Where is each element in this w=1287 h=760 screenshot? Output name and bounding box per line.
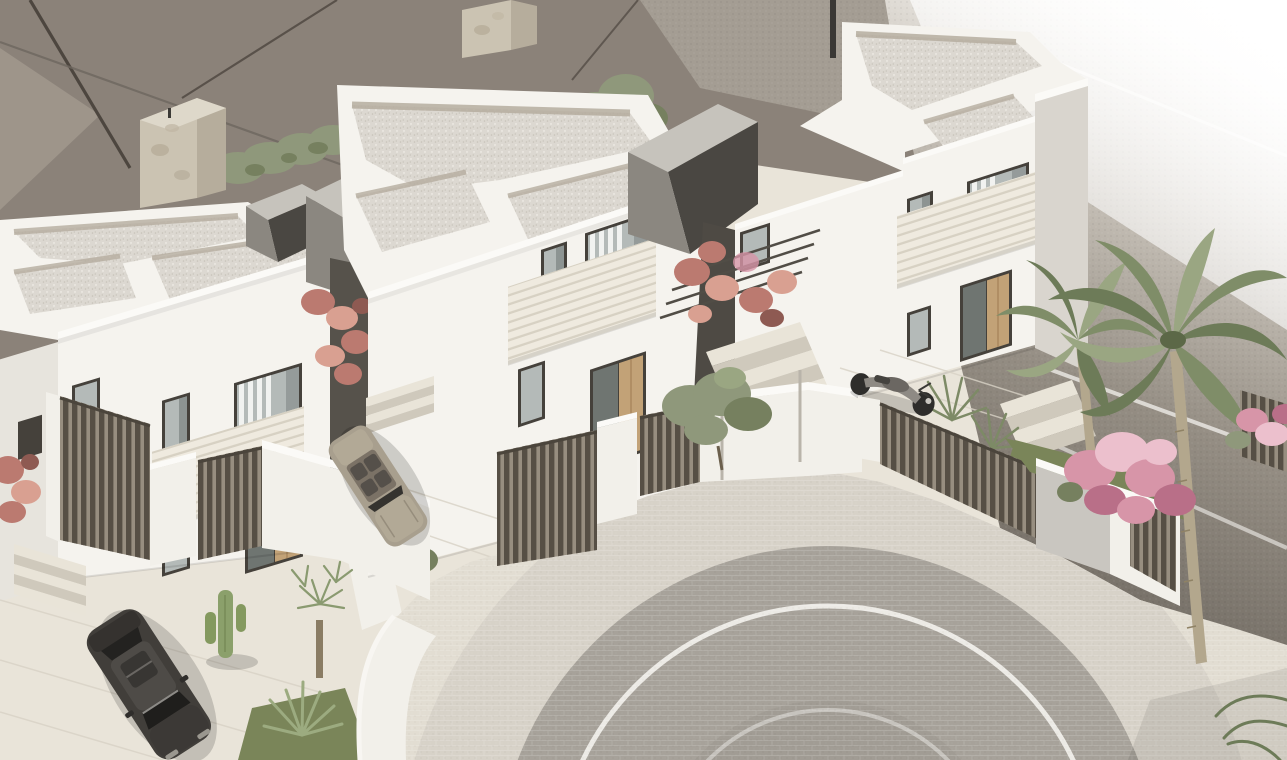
gate-2 <box>497 430 597 566</box>
porch-window <box>18 415 42 460</box>
render-canvas: Aerial 3D architectural rendering of thr… <box>0 0 1287 760</box>
gate-pier <box>597 412 637 524</box>
fence-post <box>46 392 60 542</box>
gate-pier <box>150 452 196 566</box>
architectural-render: Aerial 3D architectural rendering of thr… <box>0 0 1287 760</box>
gate-1 <box>198 446 262 560</box>
fence-pier <box>858 396 880 462</box>
antenna <box>168 108 171 118</box>
street-light-pole <box>830 0 836 58</box>
window-lower-narrow <box>907 305 931 357</box>
slat-fence-left <box>60 396 150 560</box>
window-lower-narrow <box>518 361 545 428</box>
cactus-shadow <box>206 654 258 670</box>
side-face <box>1035 84 1088 372</box>
